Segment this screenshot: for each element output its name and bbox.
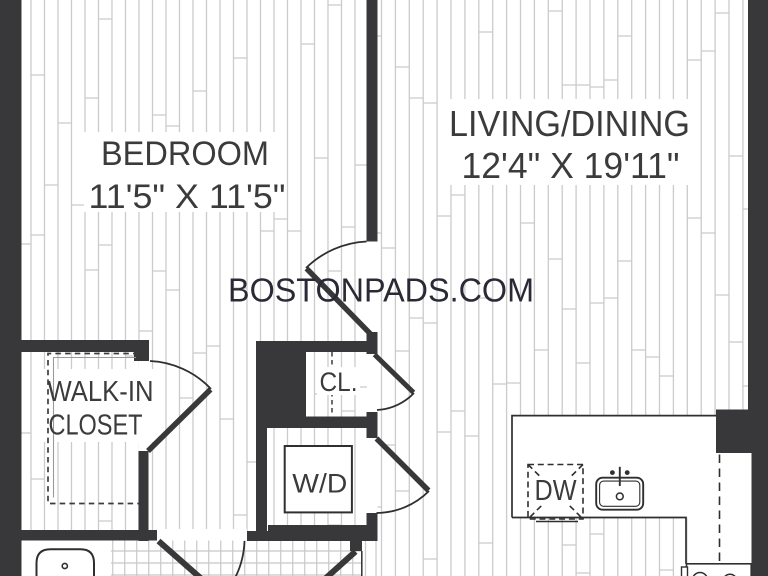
svg-text:11'5" X 11'5": 11'5" X 11'5": [89, 178, 286, 216]
svg-text:W/D: W/D: [292, 469, 347, 499]
svg-text:WALK-IN: WALK-IN: [48, 376, 154, 408]
svg-text:CL.: CL.: [320, 367, 358, 397]
svg-text:BOSTONPADS.COM: BOSTONPADS.COM: [228, 272, 534, 309]
svg-text:BEDROOM: BEDROOM: [101, 135, 269, 173]
svg-text:DW: DW: [535, 475, 578, 507]
svg-text:LIVING/DINING: LIVING/DINING: [449, 103, 690, 144]
svg-text:12'4" X 19'11": 12'4" X 19'11": [462, 145, 680, 186]
svg-text:CLOSET: CLOSET: [49, 410, 143, 442]
